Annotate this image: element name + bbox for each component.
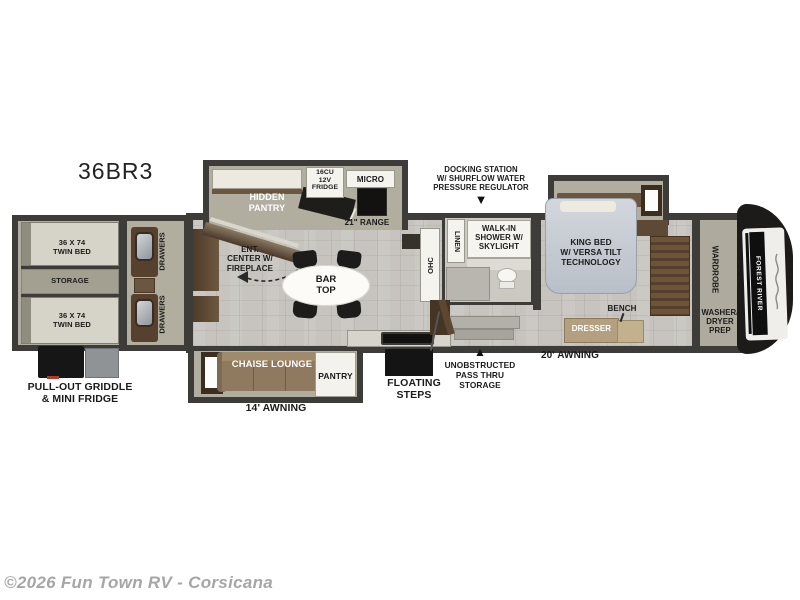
forest-river-label: FOREST RIVER — [754, 256, 763, 311]
pantry-label: PANTRY — [316, 371, 355, 381]
king-bed-label: KING BED W/ VERSA TILT TECHNOLOGY — [547, 238, 635, 267]
kitchen-sink — [381, 332, 434, 345]
hidden-pantry-label: HIDDEN PANTRY — [227, 192, 307, 213]
wardrobe-label: WARDROBE — [702, 230, 728, 308]
mini-fridge — [85, 348, 119, 378]
bench-label: BENCH — [598, 304, 646, 313]
fridge-label: 16CU 12V FRIDGE — [306, 169, 344, 192]
pull-out-griddle-label: PULL-OUT GRIDDLE & MINI FRIDGE — [10, 381, 150, 406]
hidden-pantry-counter — [212, 169, 302, 189]
twin-bed-top-label: 36 X 74 TWIN BED — [30, 239, 114, 257]
griddle-burner-detail — [47, 376, 59, 379]
twin-bed-bottom-label: 36 X 74 TWIN BED — [30, 312, 114, 330]
pull-out-griddle — [38, 346, 84, 378]
hall-step — [448, 316, 520, 329]
awning-14-label: 14' AWNING — [226, 402, 326, 414]
left-cabinet-lower — [193, 296, 219, 322]
rear-room-divider-wall — [119, 215, 127, 351]
awning-20-label: 20' AWNING — [534, 350, 606, 362]
hall-step — [454, 329, 514, 340]
bench — [617, 320, 644, 343]
range-cooktop — [357, 188, 387, 216]
bar-top-island: BAR TOP — [282, 265, 370, 306]
king-bed-pillow — [560, 201, 616, 212]
drawers-label-top: DRAWERS — [152, 224, 172, 278]
bedroom-wall — [533, 215, 541, 310]
bar-top-label: BAR TOP — [316, 275, 337, 296]
range-label: 21" RANGE — [336, 218, 398, 227]
chaise-lounge-label: CHAISE LOUNGE — [226, 359, 318, 370]
linen-label: LINEN — [447, 219, 465, 263]
pass-thru-label: UNOBSTRUCTED PASS THRU STORAGE — [437, 361, 523, 390]
drawers-label-bottom: DRAWERS — [152, 288, 172, 340]
bedroom-window-glass — [645, 190, 658, 211]
floorplan-canvas: 36BR3 36 X 74 TWIN BED STORAGE 36 X 74 T… — [0, 0, 800, 600]
brand-script-logo — [770, 248, 784, 314]
docking-station-label: DOCKING STATION W/ SHURFLOW WATER PRESSU… — [418, 165, 544, 193]
watermark: ©2026 Fun Town RV - Corsicana — [4, 573, 424, 593]
dresser-label: DRESSER — [564, 324, 619, 333]
microwave-label: MICRO — [346, 175, 395, 184]
bathroom-vanity — [446, 267, 490, 301]
floating-steps — [385, 349, 433, 376]
storage-label: STORAGE — [30, 277, 110, 286]
toilet-tank — [499, 281, 515, 289]
pass-thru-pointer-icon: ▲ — [471, 345, 489, 359]
docking-pointer-icon: ▼ — [472, 192, 490, 207]
bedroom-closet — [650, 236, 690, 316]
model-label: 36BR3 — [78, 158, 168, 185]
ohc-label: OHC — [420, 228, 440, 302]
walk-in-shower-label: WALK-IN SHOWER W/ SKYLIGHT — [467, 224, 531, 252]
